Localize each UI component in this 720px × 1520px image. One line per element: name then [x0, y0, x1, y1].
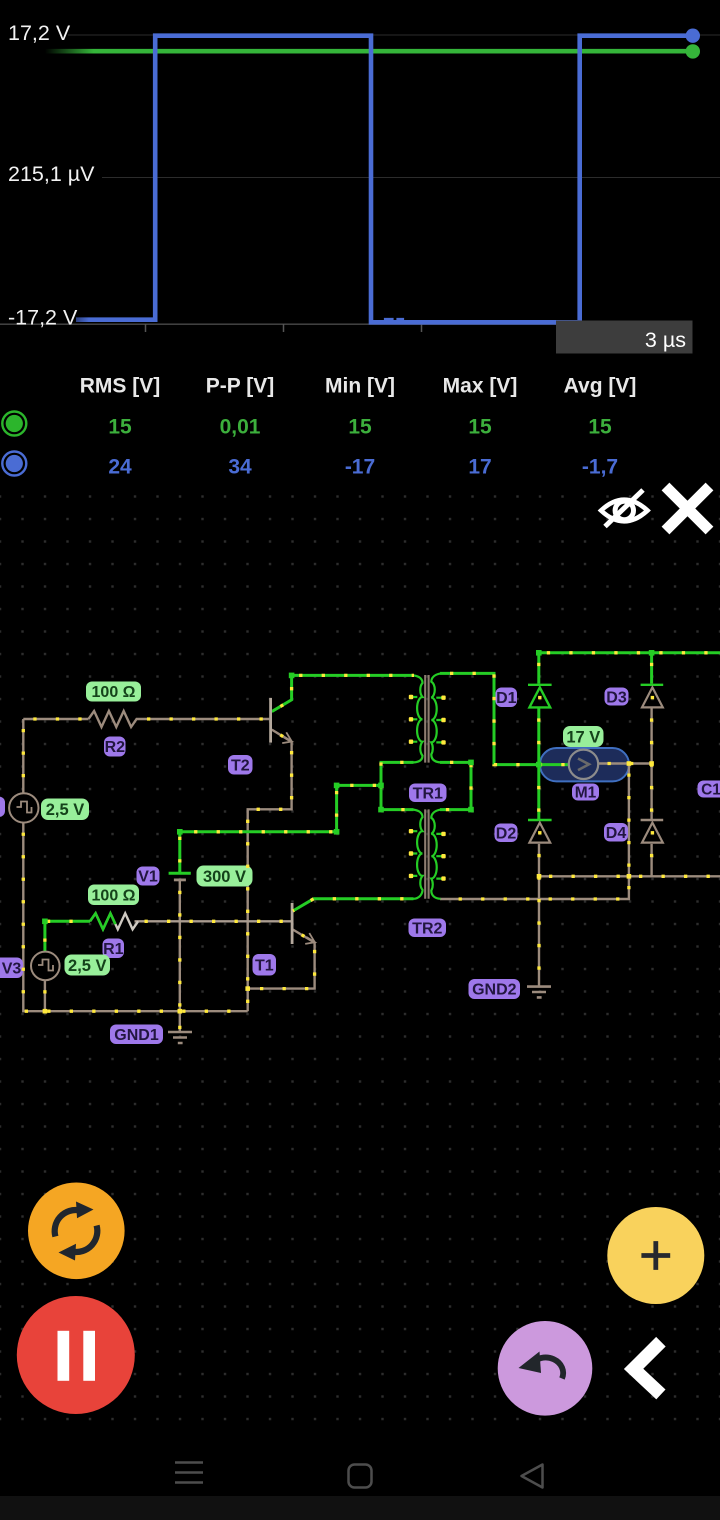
svg-text:15: 15 — [588, 416, 612, 439]
svg-text:300 V: 300 V — [203, 868, 246, 886]
svg-text:15: 15 — [108, 416, 132, 439]
svg-text:24: 24 — [108, 456, 132, 479]
svg-text:D1: D1 — [496, 690, 517, 707]
svg-text:T1: T1 — [255, 958, 274, 975]
svg-text:D2: D2 — [496, 825, 517, 842]
svg-text:GND1: GND1 — [114, 1027, 159, 1044]
svg-text:RMS [V]: RMS [V] — [80, 375, 161, 398]
svg-text:D3: D3 — [606, 689, 627, 706]
svg-text:Min [V]: Min [V] — [325, 375, 395, 398]
svg-text:-17,2 V: -17,2 V — [8, 306, 78, 330]
svg-text:17 V: 17 V — [566, 728, 600, 746]
svg-text:V3: V3 — [2, 960, 22, 977]
svg-text:215,1 µV: 215,1 µV — [8, 162, 95, 186]
svg-text:2,5 V: 2,5 V — [46, 801, 85, 819]
svg-text:2,5 V: 2,5 V — [68, 957, 107, 975]
svg-text:GND2: GND2 — [472, 982, 517, 999]
svg-text:17,2 V: 17,2 V — [8, 21, 71, 45]
svg-text:TR2: TR2 — [412, 920, 442, 937]
svg-text:100 Ω: 100 Ω — [92, 684, 136, 701]
svg-text:R1: R1 — [103, 941, 124, 958]
svg-text:Avg [V]: Avg [V] — [564, 375, 637, 398]
svg-text:3 µs: 3 µs — [645, 328, 686, 352]
svg-text:M1: M1 — [575, 784, 597, 801]
svg-text:P-P [V]: P-P [V] — [206, 375, 274, 398]
svg-text:15: 15 — [468, 416, 492, 439]
svg-text:34: 34 — [228, 456, 252, 479]
svg-text:0,01: 0,01 — [220, 416, 261, 439]
svg-text:17: 17 — [468, 456, 491, 479]
svg-text:100 Ω: 100 Ω — [92, 887, 136, 904]
svg-text:-1,7: -1,7 — [582, 456, 618, 479]
svg-text:R2: R2 — [105, 739, 126, 756]
svg-text:V1: V1 — [138, 869, 158, 886]
svg-text:TR1: TR1 — [413, 785, 443, 802]
svg-text:Max [V]: Max [V] — [443, 375, 518, 398]
svg-text:C1: C1 — [701, 781, 720, 798]
svg-text:T2: T2 — [231, 757, 250, 774]
svg-text:-17: -17 — [345, 456, 375, 479]
svg-text:D4: D4 — [606, 825, 627, 842]
svg-text:15: 15 — [348, 416, 372, 439]
